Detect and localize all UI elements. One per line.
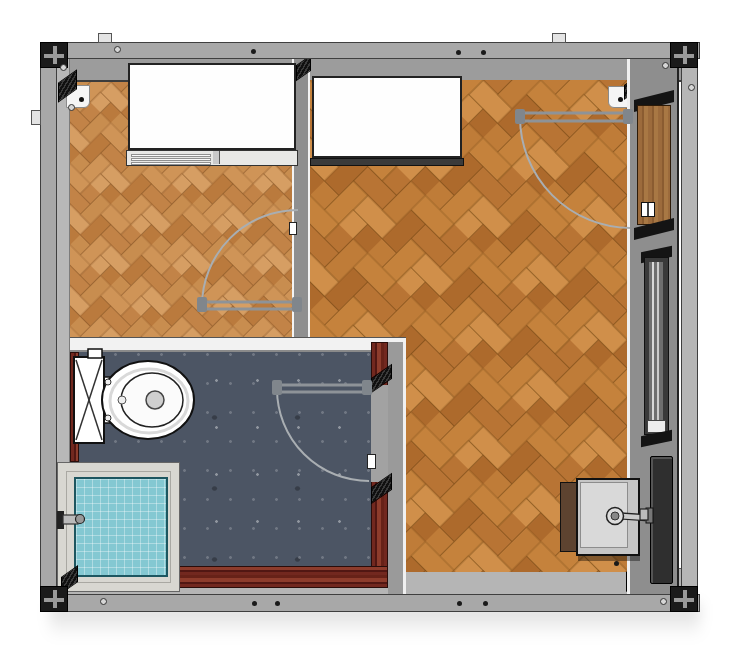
frame-tab [552, 33, 566, 43]
shower-tile-basin [74, 477, 168, 577]
frame-beam-right [681, 42, 698, 612]
frame-screw [660, 598, 667, 605]
wall-cabinet-right [312, 76, 462, 158]
basin-side-panel [560, 482, 577, 552]
corner-casting-bottom-right [670, 586, 698, 612]
shelf-divider [213, 151, 220, 164]
frame-screw [688, 84, 695, 91]
frame-tab [31, 110, 41, 125]
frame-screw [60, 64, 67, 71]
basin-shadow [578, 556, 640, 561]
frame-beam-left [40, 42, 57, 612]
wall-cabinet-right-base [310, 158, 464, 166]
beam-bolt [275, 601, 280, 606]
gusset-bolt [79, 97, 84, 102]
bathroom-left-wall-trim [70, 352, 79, 462]
beam-bolt [457, 601, 462, 606]
casting-slot [44, 54, 64, 58]
casting-slot [674, 598, 694, 602]
beam-bolt [481, 50, 486, 55]
gusset-bolt [618, 97, 623, 102]
frame-screw [114, 46, 121, 53]
frame-screw [68, 104, 75, 111]
entry-door-handle-split [647, 203, 649, 216]
floor-plan-render [0, 0, 736, 652]
corner-casting-top-right [670, 42, 698, 68]
beam-bolt [252, 601, 257, 606]
window-glazing [649, 262, 663, 422]
corner-casting-bottom-left [40, 586, 68, 612]
floor-anchor-bolt [614, 561, 619, 566]
frame-screw [100, 598, 107, 605]
shelf-slat [131, 158, 211, 161]
casting-slot [44, 598, 64, 602]
wall-cabinet-left [128, 63, 296, 150]
storage-slab [650, 456, 673, 584]
frame-tab [98, 33, 112, 43]
frame-beam-bottom [40, 594, 700, 612]
beam-bolt [456, 50, 461, 55]
frame-screw [662, 62, 669, 69]
shelf-slat [131, 154, 211, 157]
wash-basin-top [580, 482, 628, 548]
shelf-slat [131, 162, 211, 165]
casting-slot [674, 54, 694, 58]
middle-door-latch [289, 222, 297, 235]
bathroom-top-wall [70, 337, 406, 352]
bathroom-door-latch [367, 454, 376, 469]
beam-bolt [251, 49, 256, 54]
bathroom-right-wall-outer [388, 342, 406, 594]
frame-beam-top [40, 42, 700, 59]
beam-bolt [483, 601, 488, 606]
bathroom-bottom-wall [168, 566, 388, 588]
wall-cabinet-left-shelf [126, 150, 298, 166]
